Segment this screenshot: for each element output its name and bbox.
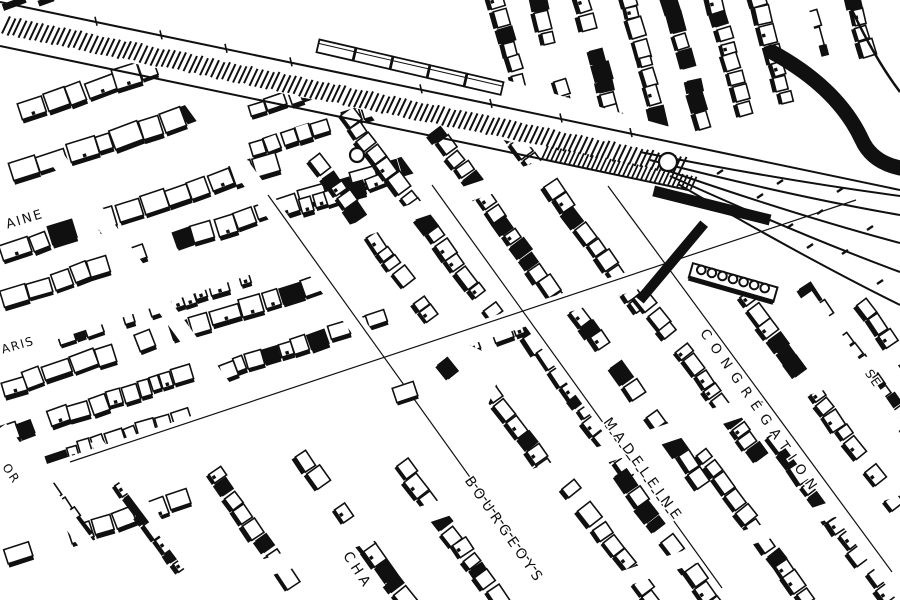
map-stage: AINEARISORCHABOURGEOYSMADELEINECONGRÉGAT… xyxy=(0,0,900,600)
map-canvas: AINEARISORCHABOURGEOYSMADELEINECONGRÉGAT… xyxy=(0,0,900,600)
street-label-aris: ARIS xyxy=(0,334,36,357)
